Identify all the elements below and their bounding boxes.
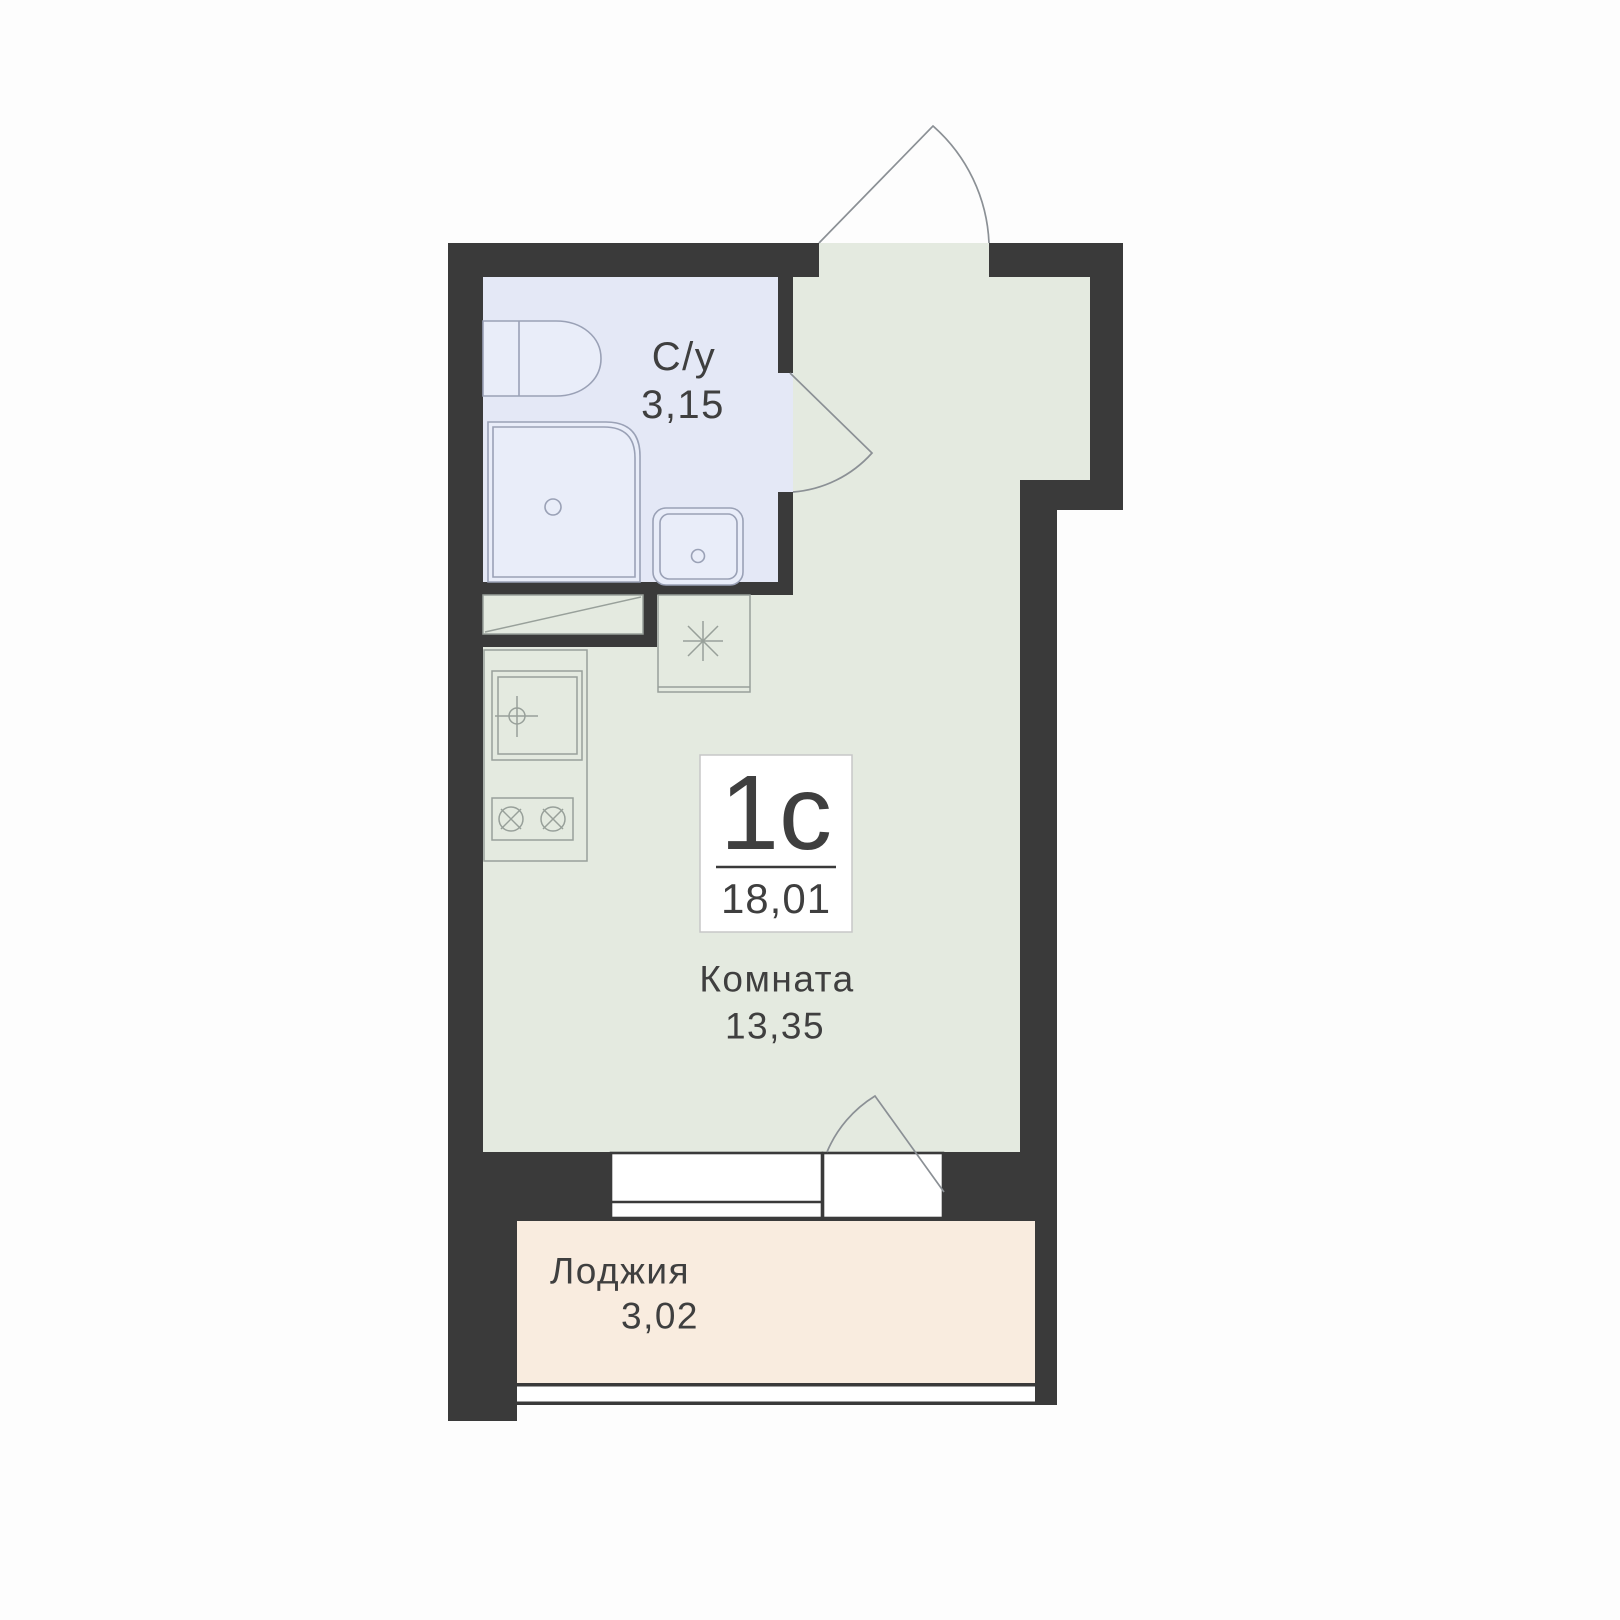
- wall-top-right: [989, 243, 1123, 277]
- unit-area-label: 18,01: [721, 878, 831, 920]
- wall-below-shaft: [448, 634, 657, 647]
- wall-left: [448, 277, 483, 1152]
- wall-loggia-left: [448, 1221, 517, 1421]
- loggia-glazing: [517, 1383, 1035, 1405]
- wall-bathroom-partition-bottom: [778, 492, 793, 582]
- wall-loggia-right: [1035, 1221, 1057, 1405]
- bathroom-name-label: С/у: [652, 337, 717, 377]
- loggia-name-label: Лоджия: [550, 1253, 690, 1290]
- wall-bathroom-partition-top: [778, 277, 793, 373]
- loggia-area-label: 3,02: [621, 1298, 699, 1335]
- shower-tray: [488, 422, 640, 582]
- vent-box: [658, 595, 750, 692]
- wall-top-left: [448, 243, 819, 277]
- living-room-name-label: Комната: [699, 961, 854, 998]
- wall-right-upper: [1090, 277, 1123, 510]
- loggia-floor: [517, 1221, 1035, 1383]
- floor-plan-canvas: С/у 3,15 1с 18,01 Комната 13,35 Лоджия 3…: [0, 0, 1620, 1620]
- living-room-window: [611, 1153, 822, 1218]
- entrance-opening-floor: [819, 243, 989, 277]
- wall-bathroom-bottom: [483, 582, 793, 595]
- bathroom-door-opening-floor: [778, 373, 793, 492]
- wall-right-lower: [1020, 510, 1057, 1152]
- stove: [492, 798, 573, 840]
- toilet: [483, 321, 601, 396]
- living-room-area-label: 13,35: [725, 1008, 825, 1045]
- bathroom-area-label: 3,15: [641, 385, 725, 425]
- balcony-door: [823, 1153, 943, 1218]
- kitchen-sink: [492, 671, 582, 760]
- bath-sink: [653, 508, 743, 585]
- unit-type-label: 1с: [720, 760, 832, 866]
- door-arc-entrance: [819, 126, 989, 243]
- vent-asterisk-icon: [683, 621, 723, 661]
- duct-shaft: [483, 595, 643, 634]
- wall-right-step: [1020, 480, 1123, 510]
